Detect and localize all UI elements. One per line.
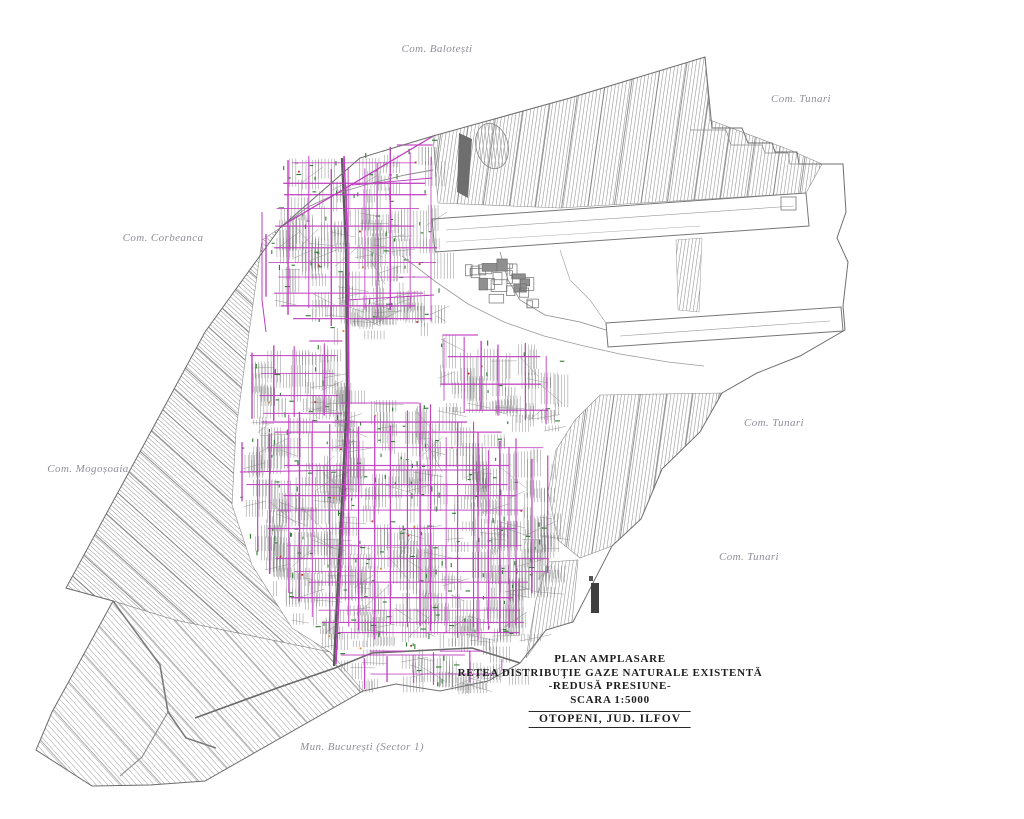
terminal-building: [479, 278, 487, 290]
dense-symbol-block: [589, 576, 593, 581]
airport-pad: [781, 197, 796, 210]
airport-shape: [676, 238, 702, 312]
gas-trunk-line: [280, 135, 435, 227]
neighbor-label-com-balotesti: Com. Balotești: [402, 43, 473, 55]
terminal-building: [482, 263, 498, 271]
airport-shape: [606, 307, 843, 347]
neighbor-label-com-corbeanca: Com. Corbeanca: [123, 232, 204, 244]
title-line-3: -REDUSĂ PRESIUNE-: [458, 680, 763, 694]
neighbor-label-com-mogosoaia: Com. Mogoșoaia: [47, 463, 128, 475]
airport-line: [446, 226, 700, 242]
neighbor-label-com-tunari-north: Com. Tunari: [771, 93, 831, 105]
title-line-1: PLAN AMPLASARE: [458, 653, 763, 667]
neighbor-label-mun-bucuresti: Mun. București (Sector 1): [300, 741, 424, 753]
title-line-4: SCARA 1:5000: [458, 694, 763, 708]
title-location: OTOPENI, JUD. ILFOV: [529, 711, 691, 728]
title-block: PLAN AMPLASARE REȚEA DISTRIBUȚIE GAZE NA…: [458, 653, 763, 728]
plan-page: Com. BaloteștiCom. TunariCom. CorbeancaC…: [0, 0, 1024, 819]
neighbor-label-com-tunari-southeast: Com. Tunari: [719, 551, 779, 563]
urban-fabric: [240, 140, 569, 694]
neighbor-label-com-tunari-east: Com. Tunari: [744, 417, 804, 429]
terminal-building: [489, 294, 504, 303]
terminal-building: [497, 259, 507, 271]
title-line-2: REȚEA DISTRIBUȚIE GAZE NATURALE EXISTENT…: [458, 667, 763, 681]
terminal-building: [491, 280, 507, 292]
dense-symbol-block: [591, 583, 599, 613]
airport-line: [560, 250, 606, 323]
terminal-building: [512, 274, 526, 279]
airport-line: [446, 206, 794, 230]
